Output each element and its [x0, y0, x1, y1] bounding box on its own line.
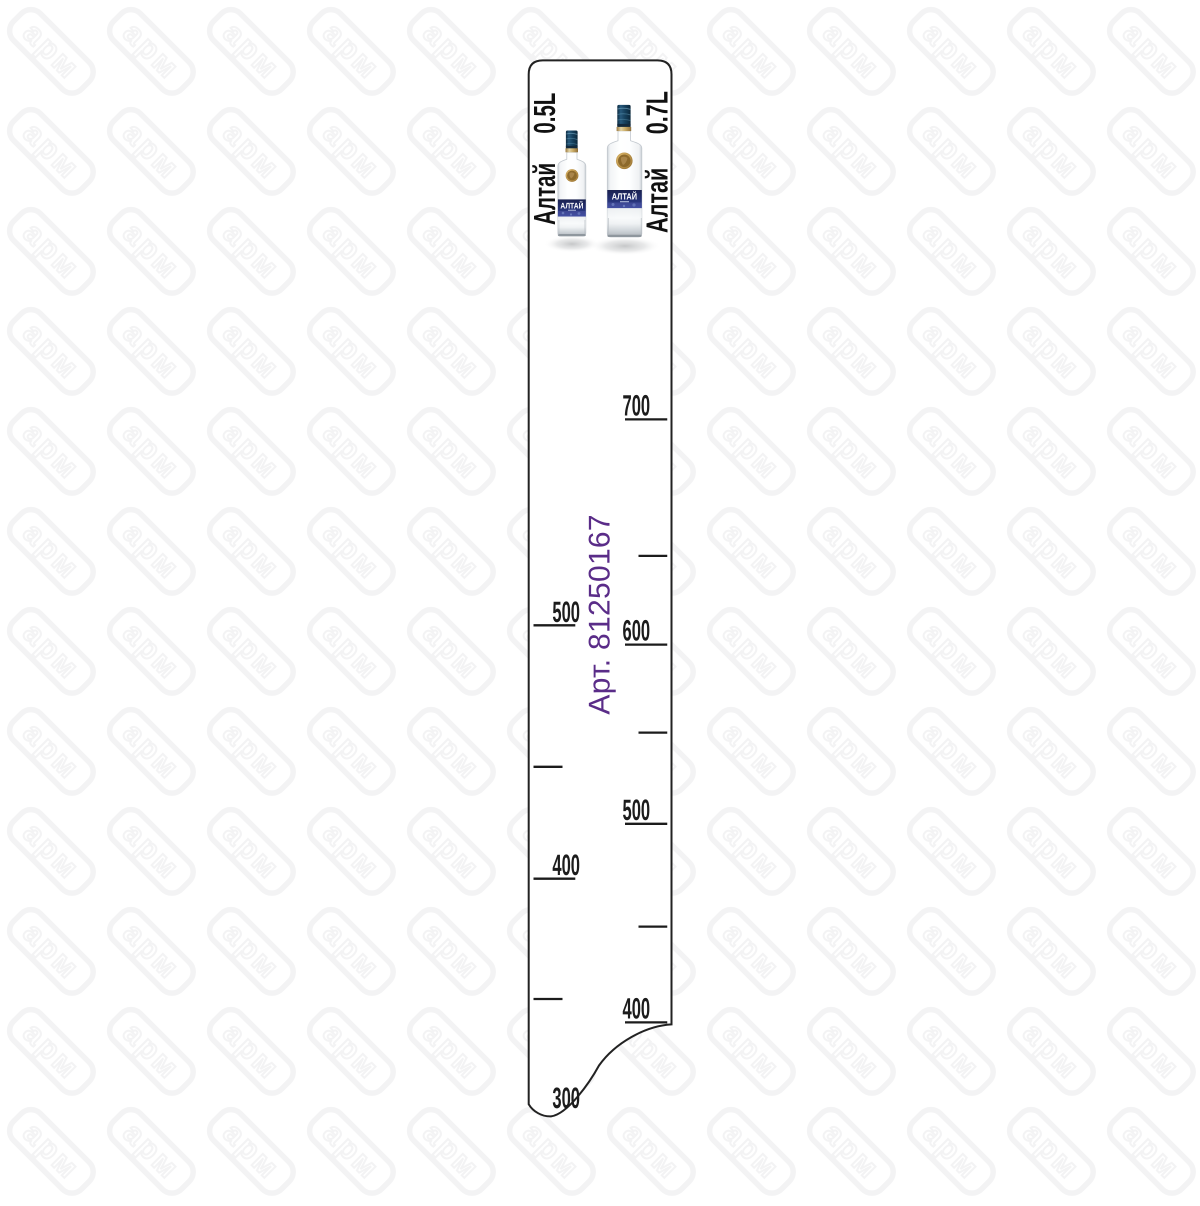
svg-text:600: 600 [623, 615, 651, 648]
svg-text:500: 500 [623, 794, 651, 827]
svg-text:АЛТАЙ: АЛТАЙ [612, 191, 637, 202]
svg-text:Арт. 81250167: Арт. 81250167 [584, 514, 617, 715]
svg-text:АЛТАЙ: АЛТАЙ [560, 200, 583, 210]
svg-text:0.7L: 0.7L [641, 91, 675, 134]
svg-text:700: 700 [623, 390, 651, 423]
svg-text:Алтай: Алтай [528, 163, 562, 225]
svg-text:Алтай: Алтай [641, 168, 675, 233]
svg-text:400: 400 [552, 849, 580, 882]
svg-text:500: 500 [552, 596, 580, 629]
svg-text:0.5L: 0.5L [528, 93, 562, 134]
svg-text:300: 300 [552, 1082, 580, 1115]
svg-text:400: 400 [623, 993, 651, 1026]
